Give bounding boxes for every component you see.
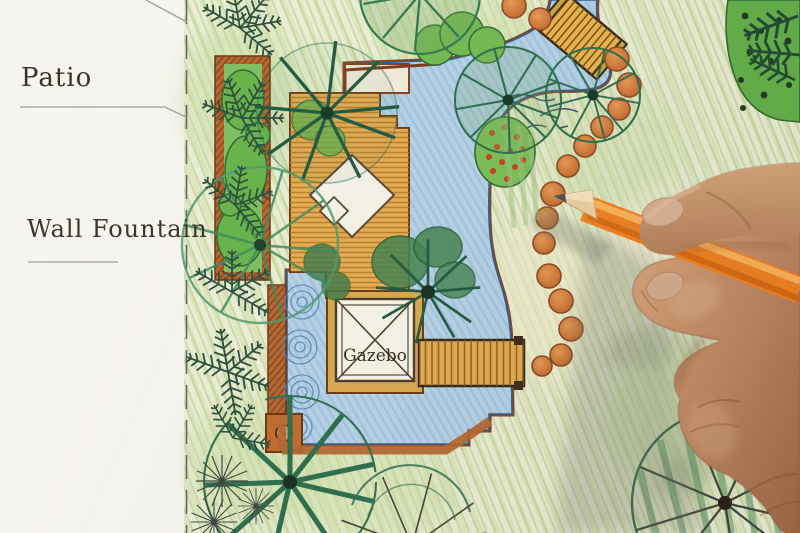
photo-landscape-plan-with-hand: Gazebo	[0, 0, 800, 533]
lighting-overlay	[0, 0, 800, 533]
landscape-plan-drawing: Gazebo	[0, 0, 800, 533]
